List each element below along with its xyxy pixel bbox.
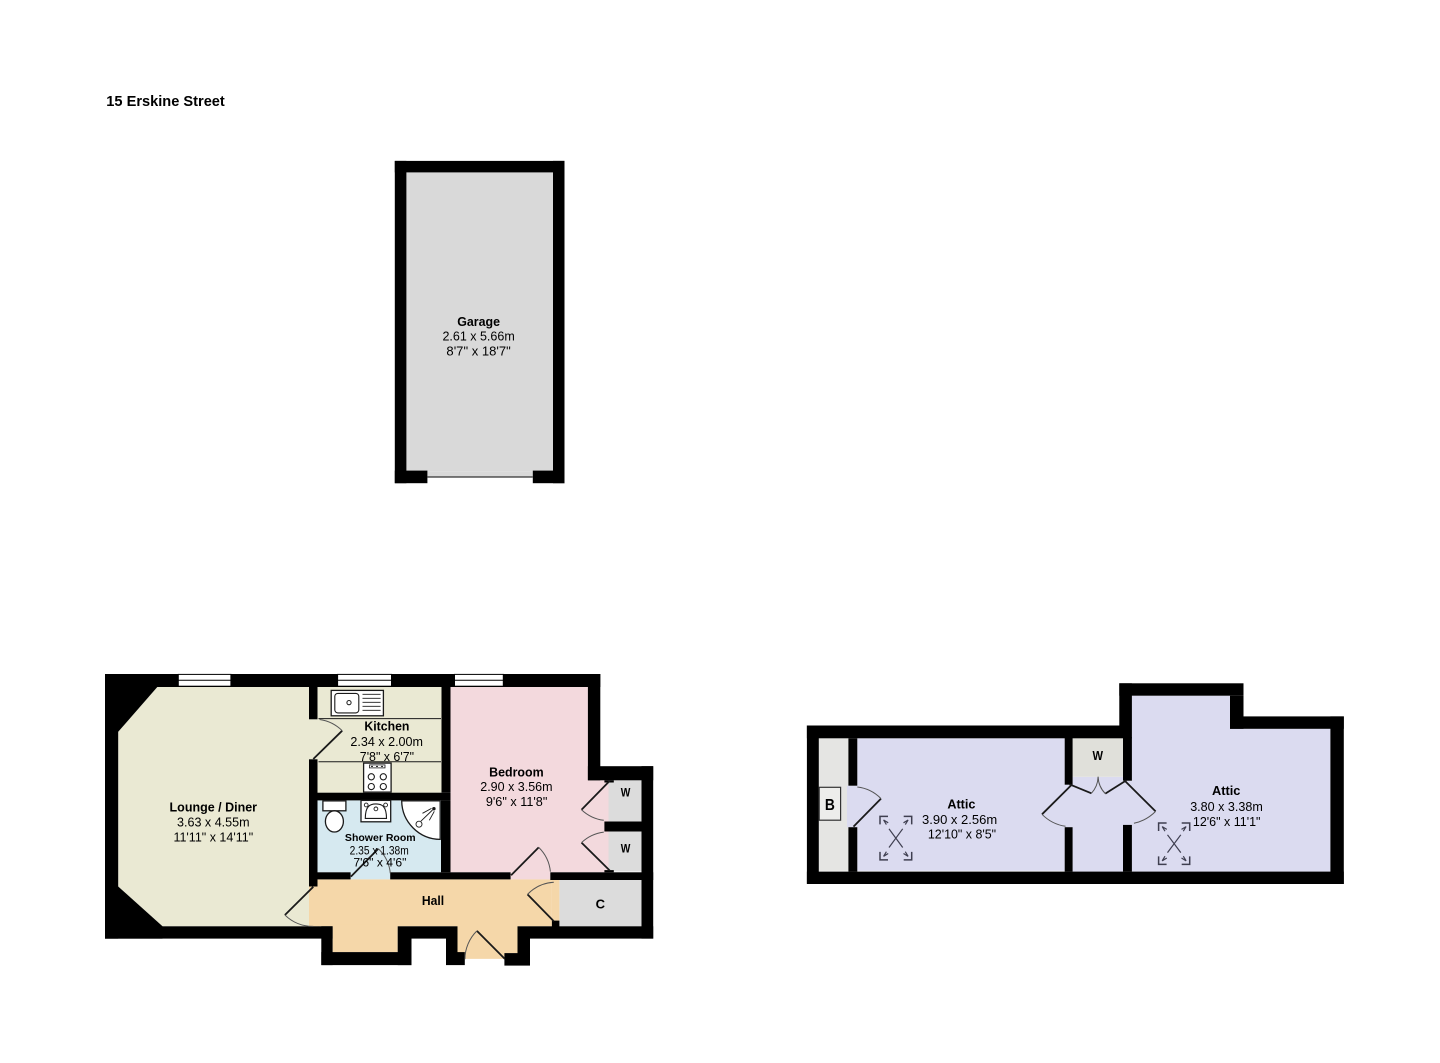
svg-text:Attic: Attic [1212, 783, 1240, 798]
svg-text:Lounge / Diner: Lounge / Diner [170, 800, 258, 815]
svg-text:Attic: Attic [947, 796, 975, 811]
svg-text:3.80 x 3.38m: 3.80 x 3.38m [1190, 799, 1263, 814]
svg-text:2.90 x 3.56m: 2.90 x 3.56m [480, 779, 552, 794]
svg-text:Kitchen: Kitchen [364, 719, 409, 734]
svg-text:11'11" x 14'11": 11'11" x 14'11" [173, 830, 253, 845]
svg-text:9'6" x 11'8": 9'6" x 11'8" [486, 794, 548, 809]
svg-text:3.63 x 4.55m: 3.63 x 4.55m [177, 814, 250, 829]
svg-text:2.35 x 1.38m: 2.35 x 1.38m [350, 844, 409, 857]
svg-text:C: C [596, 897, 606, 912]
svg-text:15 Erskine Street: 15 Erskine Street [106, 94, 225, 110]
svg-text:B: B [825, 797, 835, 814]
svg-text:W: W [1093, 749, 1104, 763]
svg-text:7'6" x 4'6": 7'6" x 4'6" [353, 857, 406, 870]
svg-text:Garage: Garage [457, 314, 500, 329]
svg-text:12'6" x 11'1": 12'6" x 11'1" [1193, 814, 1261, 829]
svg-text:Shower Room: Shower Room [345, 833, 416, 844]
svg-text:3.90 x 2.56m: 3.90 x 2.56m [922, 812, 997, 827]
svg-text:2.61 x 5.66m: 2.61 x 5.66m [442, 329, 514, 344]
svg-text:12'10" x 8'5": 12'10" x 8'5" [928, 827, 997, 842]
svg-text:8'7" x 18'7": 8'7" x 18'7" [446, 344, 511, 359]
svg-text:W: W [621, 786, 631, 800]
svg-text:2.34 x 2.00m: 2.34 x 2.00m [350, 734, 423, 749]
svg-text:Hall: Hall [422, 893, 444, 908]
svg-text:7'8" x 6'7": 7'8" x 6'7" [360, 749, 415, 764]
svg-text:Bedroom: Bedroom [489, 764, 544, 779]
svg-text:W: W [621, 841, 631, 855]
